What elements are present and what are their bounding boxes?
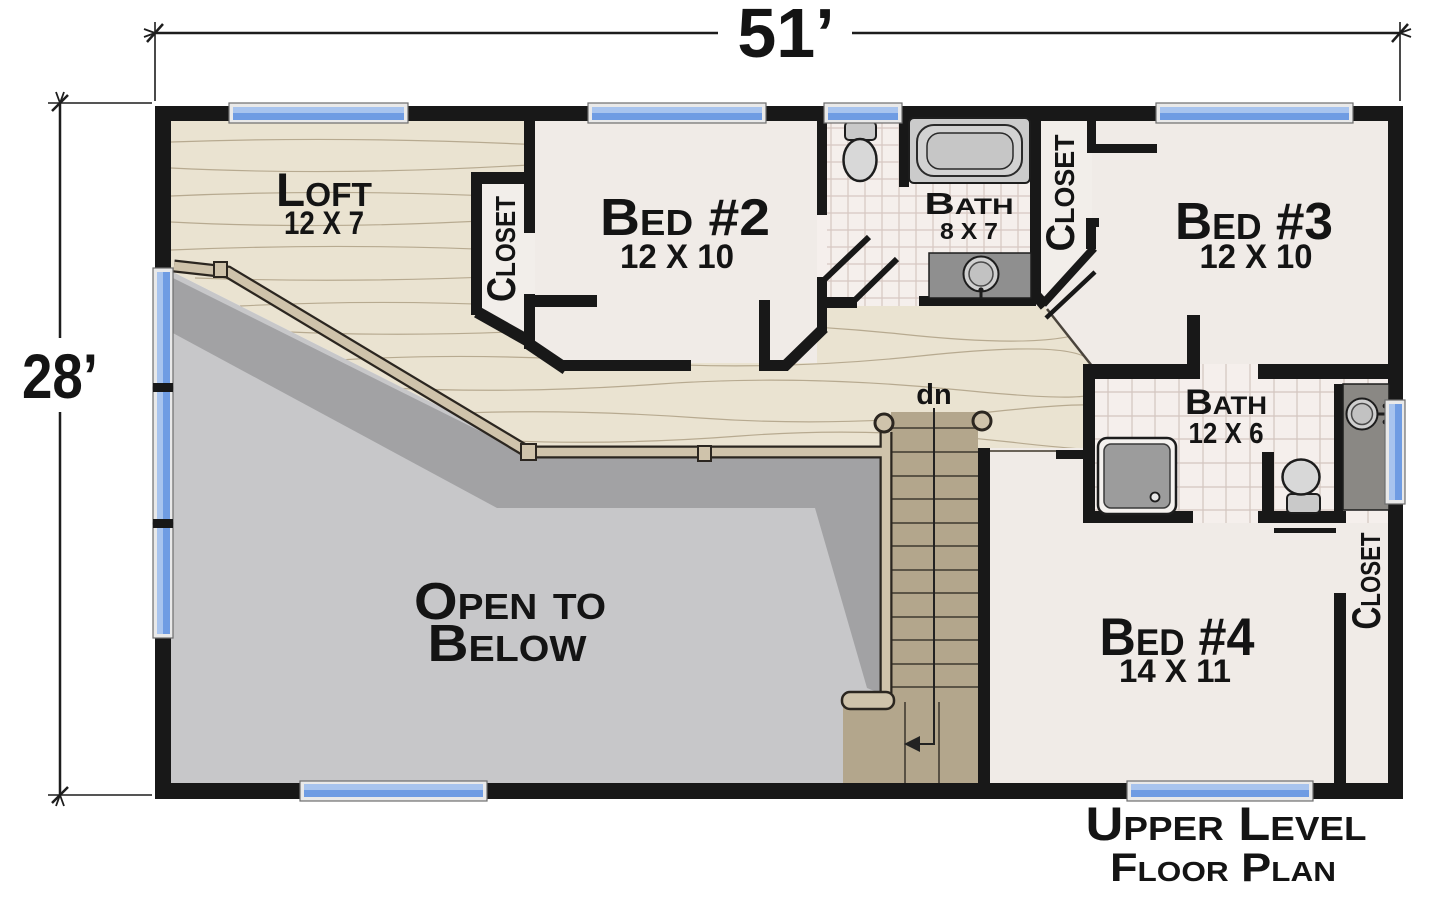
svg-text:14 X 11: 14 X 11 [1119, 653, 1231, 689]
svg-text:dn: dn [916, 379, 951, 411]
svg-text:Bath: Bath [1185, 383, 1267, 422]
svg-text:Closet: Closet [480, 196, 524, 302]
svg-text:51’: 51’ [737, 0, 834, 72]
svg-text:Below: Below [428, 615, 587, 673]
svg-text:8 X 7: 8 X 7 [940, 218, 998, 244]
svg-text:12 X 10: 12 X 10 [1200, 238, 1313, 276]
svg-text:Bath: Bath [925, 186, 1014, 221]
svg-text:12 X 6: 12 X 6 [1189, 418, 1264, 450]
svg-text:12 X 7: 12 X 7 [284, 205, 364, 241]
svg-text:Closet: Closet [1039, 135, 1083, 252]
svg-text:Upper Level: Upper Level [1086, 797, 1367, 850]
svg-text:12 X 10: 12 X 10 [620, 238, 734, 276]
svg-text:Floor Plan: Floor Plan [1110, 846, 1336, 890]
svg-text:28’: 28’ [22, 342, 98, 412]
svg-text:Closet: Closet [1345, 533, 1389, 630]
